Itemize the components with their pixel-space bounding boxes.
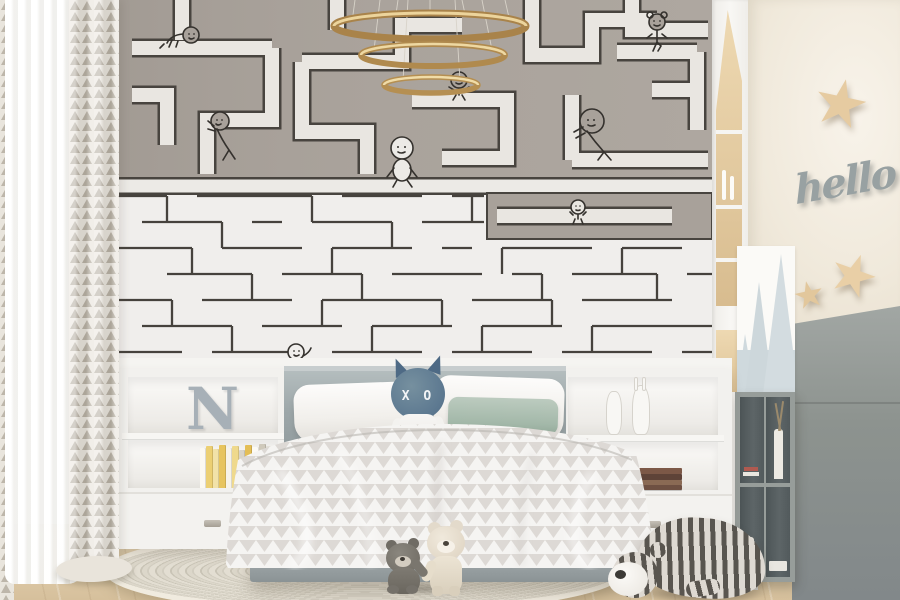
- niche-shelf: [716, 130, 742, 134]
- book-spine: [206, 446, 213, 488]
- bear-leg: [449, 586, 460, 596]
- mountain-decals: [737, 246, 795, 394]
- plush-nose: [615, 570, 626, 579]
- bear-nose: [400, 557, 405, 561]
- bear-leg: [406, 585, 418, 594]
- curtain-folds: [69, 0, 119, 580]
- bear-leg: [387, 585, 399, 594]
- bunny-ear: [634, 377, 638, 391]
- ring-chandelier: [320, 0, 550, 105]
- vase-decor: [722, 170, 726, 200]
- bedroom-scene: hello ★ ★ ★ N: [0, 0, 900, 600]
- gray-cabinet: [792, 304, 900, 600]
- cabinet-seam: [792, 402, 900, 404]
- cubby-cell: [766, 397, 790, 483]
- bear-nose: [443, 541, 449, 546]
- paper-stack: [769, 561, 787, 571]
- white-vase: [774, 429, 783, 479]
- vase-decor: [730, 176, 734, 200]
- patterned-curtain: [69, 0, 119, 580]
- small-white-book: [743, 472, 759, 476]
- bunny-ear: [642, 377, 646, 391]
- plush-snout: [608, 562, 648, 596]
- niche-shelf: [716, 205, 742, 209]
- bear-leg: [432, 586, 443, 596]
- mountain-decal-panel: [737, 246, 795, 394]
- cubby-cell: [740, 397, 764, 483]
- twig: [778, 401, 784, 431]
- xo-plush-face-text: X O: [389, 389, 447, 404]
- drawer-handle-icon: [204, 520, 221, 527]
- plush-ear: [650, 542, 666, 558]
- small-red-book: [744, 467, 758, 471]
- cubby-cell: [766, 487, 790, 577]
